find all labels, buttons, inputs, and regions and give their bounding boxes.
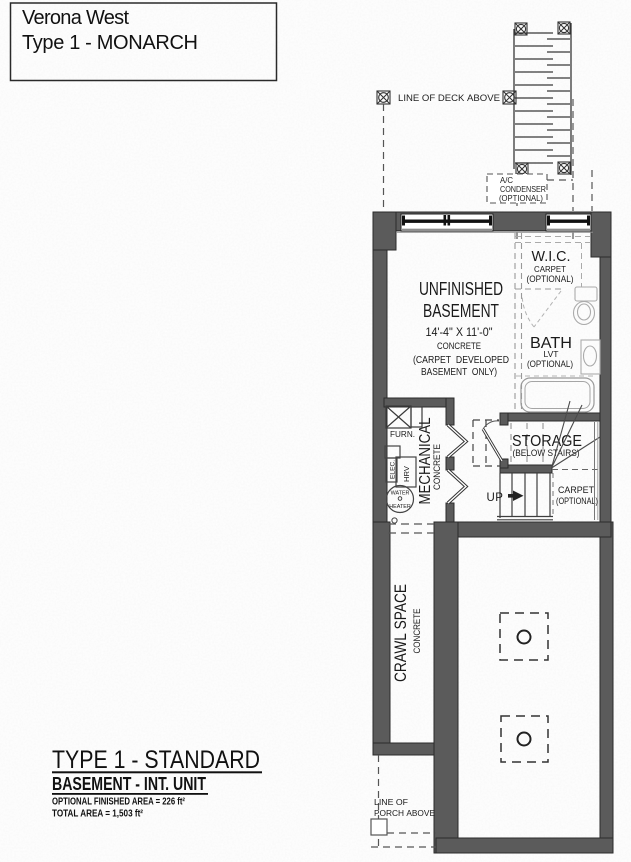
svg-text:(OPTIONAL): (OPTIONAL) — [556, 496, 598, 506]
svg-text:CONDENSER: CONDENSER — [500, 185, 546, 194]
svg-text:(OPTIONAL): (OPTIONAL) — [527, 274, 574, 284]
svg-text:CRAWL SPACE: CRAWL SPACE — [391, 584, 410, 682]
svg-text:CONCRETE: CONCRETE — [437, 341, 481, 352]
svg-text:HRV: HRV — [402, 465, 411, 482]
svg-text:LINE OF DECK ABOVE: LINE OF DECK ABOVE — [398, 93, 500, 104]
svg-text:CONCRETE: CONCRETE — [432, 444, 443, 490]
svg-text:14'-4" X 11'-0": 14'-4" X 11'-0" — [426, 327, 493, 339]
svg-text:LVT: LVT — [544, 349, 559, 359]
svg-text:PORCH ABOVE: PORCH ABOVE — [374, 809, 436, 818]
svg-text:(OPTIONAL): (OPTIONAL) — [499, 194, 543, 203]
svg-text:A/C: A/C — [500, 176, 513, 185]
svg-text:TYPE 1 - STANDARD: TYPE 1 - STANDARD — [52, 746, 260, 774]
svg-text:BASEMENT: BASEMENT — [423, 300, 499, 321]
svg-text:CARPET: CARPET — [558, 485, 595, 495]
svg-text:CARPET: CARPET — [534, 264, 567, 274]
svg-text:WATER: WATER — [391, 491, 410, 497]
svg-text:OPTIONAL FINISHED AREA = 226 f: OPTIONAL FINISHED AREA = 226 ft² — [52, 796, 185, 808]
svg-text:W.I.C.: W.I.C. — [532, 248, 571, 265]
svg-text:FURN.: FURN. — [390, 429, 415, 439]
svg-text:Verona West: Verona West — [22, 7, 129, 29]
svg-text:BASEMENT ONLY): BASEMENT ONLY) — [421, 366, 497, 378]
svg-text:TOTAL AREA = 1,503 ft²: TOTAL AREA = 1,503 ft² — [52, 808, 143, 820]
svg-text:UNFINISHED: UNFINISHED — [419, 278, 503, 299]
svg-text:(OPTIONAL): (OPTIONAL) — [527, 359, 573, 369]
svg-text:Type 1 - MONARCH: Type 1 - MONARCH — [22, 32, 198, 54]
svg-text:CONCRETE: CONCRETE — [412, 609, 423, 654]
svg-text:(CARPET DEVELOPED: (CARPET DEVELOPED — [413, 354, 509, 366]
svg-text:BASEMENT - INT. UNIT: BASEMENT - INT. UNIT — [52, 774, 206, 794]
svg-text:HEATER: HEATER — [389, 504, 411, 510]
svg-text:UP: UP — [487, 492, 504, 504]
svg-text:LINE OF: LINE OF — [374, 798, 408, 807]
